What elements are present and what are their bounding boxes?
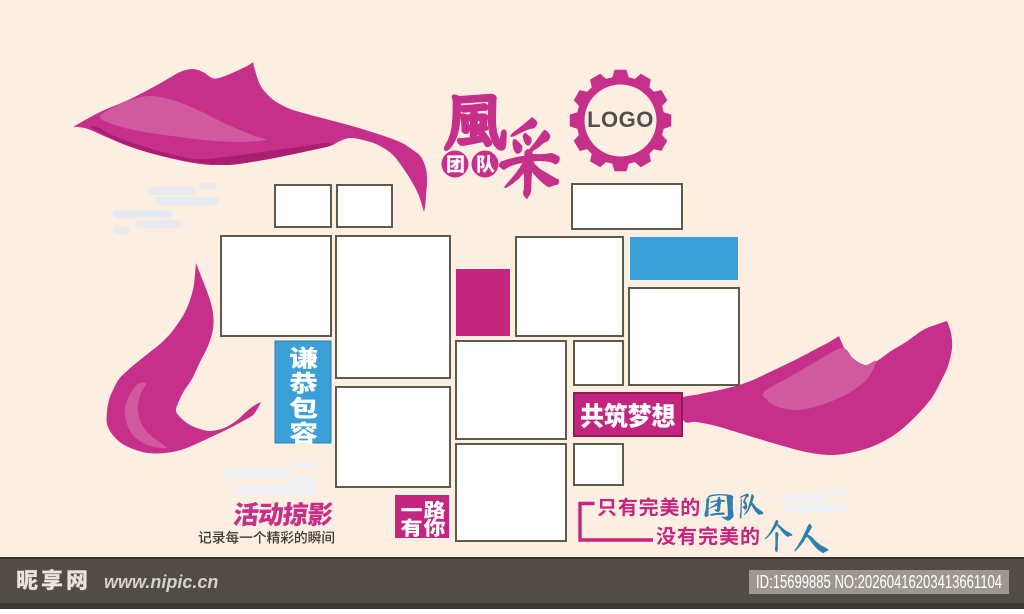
svg-text:ID:15699885 NO:202604162034136: ID:15699885 NO:20260416203413661104 bbox=[756, 572, 1002, 592]
svg-text:LOGO: LOGO bbox=[587, 107, 654, 132]
svg-text:www.nipic.cn: www.nipic.cn bbox=[104, 572, 218, 592]
